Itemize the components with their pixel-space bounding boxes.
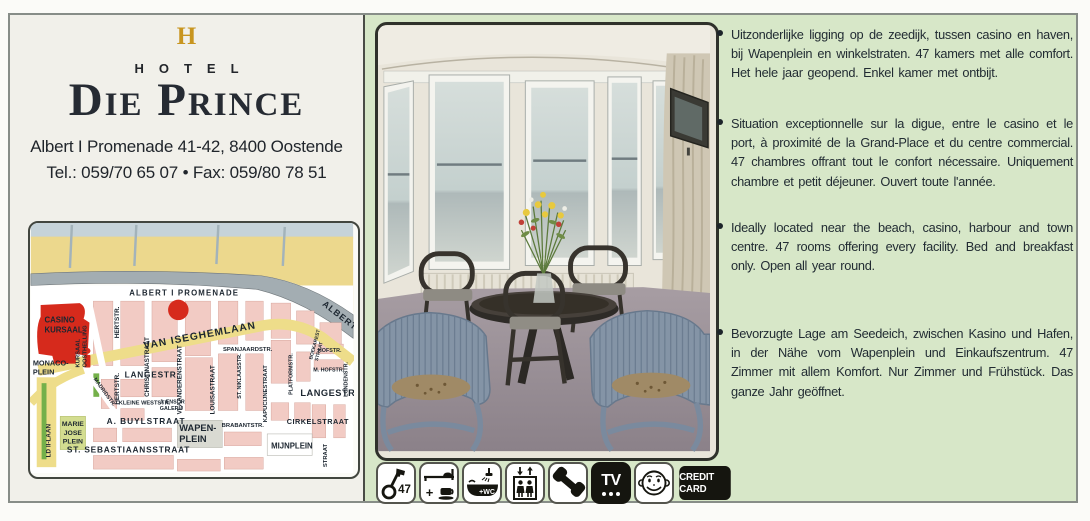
bullet-icon [717, 25, 731, 83]
amenity-rooms: 47 [376, 462, 416, 504]
location-map: ALBERT I PROMENADE ALBERT I PR VAN ISEGH… [28, 221, 360, 479]
map-label-hofstr: HOFSTR. [318, 348, 342, 354]
smiley-icon [639, 471, 669, 495]
amenity-bath-wc: +WC [462, 462, 502, 504]
room-photo [375, 22, 719, 461]
map-label-straat-vert: STRAAT [323, 443, 329, 467]
map-label-langestraat: LANGESTRAAT [300, 388, 354, 398]
map-label-kapucijnestraat: KAPUCIJNESTRAAT [263, 365, 269, 422]
bath-wc-label: +WC [479, 489, 495, 496]
brochure-frame: H HOTEL Die Prince Albert I Promenade 41… [8, 13, 1078, 503]
room-photo-illustration [378, 25, 710, 452]
bullet-icon [717, 218, 731, 276]
hotel-location-marker [168, 300, 189, 321]
map-label-ensor: J. ENSORGALERIJ [160, 400, 185, 412]
map-label-a-buylstraat: A. BUYLSTRAAT [107, 416, 186, 426]
map-label-mijnplein: MIJNPLEIN [271, 442, 313, 451]
map-label-langestr: LANGESTR. [125, 369, 180, 379]
phone-icon [551, 465, 586, 498]
map-label-louisastraat: LOUISASTRAAT [209, 365, 216, 414]
hotel-name: Die Prince [10, 73, 363, 127]
bullet-icon [717, 114, 731, 191]
amenity-bed-breakfast: + [419, 462, 459, 504]
description-text-fr: Situation exceptionnelle sur la digue, e… [731, 114, 1073, 191]
map-label-hertstr-north: HERTSTR. [114, 306, 121, 338]
map-label-spanjaardstr: SPANJAARDSTR. [223, 347, 273, 353]
description-text-de: Bevorzugte Lage am Seedeich, zwischen Ka… [731, 324, 1073, 401]
amenity-children [634, 462, 674, 504]
amenity-elevator [505, 462, 545, 504]
description-text-nl: Uitzonderlijke ligging op de zeedijk, tu… [731, 25, 1073, 83]
hotel-contact: Tel.: 059/70 65 07 • Fax: 059/80 78 51 [10, 163, 363, 183]
map-label-m-hofstr: M. HOFSTR. [313, 367, 344, 373]
green-panel: 47 + [365, 15, 1076, 501]
hotel-address: Albert I Promenade 41-42, 8400 Oostende [10, 137, 363, 157]
descriptions-panel: Uitzonderlijke ligging op de zeedijk, tu… [717, 15, 1081, 501]
description-item: Situation exceptionnelle sur la digue, e… [717, 114, 1073, 191]
amenities-bar: 47 + [376, 462, 733, 504]
description-text-en: Ideally located near the beach, casino, … [731, 218, 1073, 276]
tv-dots [602, 492, 620, 496]
rooms-count: 47 [398, 484, 411, 496]
tv-icon: TV [601, 473, 620, 489]
plus-label: + [426, 485, 434, 500]
elevator-icon [514, 467, 536, 500]
map-label-platformstr: PLATFORMSTR. [289, 353, 295, 395]
left-panel: H HOTEL Die Prince Albert I Promenade 41… [10, 15, 365, 501]
map-label-brabantstr: BRABANTSTR. [222, 423, 265, 429]
map-label-leopold-laan: LD II-LAAN [45, 424, 52, 458]
map-illustration: ALBERT I PROMENADE ALBERT I PR VAN ISEGH… [30, 223, 354, 473]
amenity-tv: TV [591, 462, 631, 504]
description-item: Ideally located near the beach, casino, … [717, 218, 1073, 276]
map-label-cirkelstraat: CIRKELSTRAAT [287, 417, 349, 426]
bullet-icon [717, 324, 731, 401]
amenity-phone [548, 462, 588, 504]
map-label-marie-jose: MARIEJOSEPLEIN [62, 421, 84, 446]
hotel-logo-initial: H [10, 23, 363, 51]
map-label-st-sebastiaansstraat: ST. SEBASTIAANSSTRAAT [67, 444, 190, 454]
brochure-page: H HOTEL Die Prince Albert I Promenade 41… [0, 0, 1090, 521]
map-label-albert-promenade: ALBERT I PROMENADE [129, 288, 239, 297]
map-label-christinastraat: CHRISTINASTRAAT [144, 337, 151, 397]
description-item: Bevorzugte Lage am Seedeich, zwischen Ka… [717, 324, 1073, 401]
map-sea [31, 223, 353, 239]
description-item: Uitzonderlijke ligging op de zeedijk, tu… [717, 25, 1073, 83]
map-label-st-niklaasstr: ST. NIKLAASSTR. [237, 353, 243, 399]
